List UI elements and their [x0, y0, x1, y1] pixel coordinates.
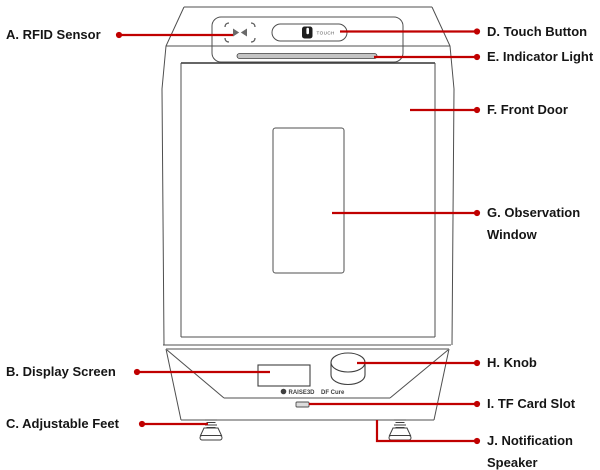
- top-panel: TOUCH: [212, 17, 403, 62]
- label-observation-window: G. Observation Window: [487, 202, 599, 246]
- brand-model-text: DF Cure: [321, 390, 345, 396]
- label-notification-speaker: J. Notification Speaker: [487, 430, 599, 470]
- brand-logo: RAISE3D DF Cure: [281, 389, 345, 396]
- label-rfid-sensor: A. RFID Sensor: [6, 27, 101, 43]
- tf-card-slot: [296, 402, 309, 407]
- display-screen: [258, 365, 310, 386]
- leader-lines: [116, 28, 480, 444]
- label-touch-button: D. Touch Button: [487, 24, 587, 40]
- front-door: [182, 64, 434, 336]
- touch-button: TOUCH: [272, 24, 347, 41]
- touch-finger-icon: [302, 27, 313, 39]
- device-diagram: TOUCH RAISE3D: [0, 0, 600, 470]
- knob: [331, 353, 365, 385]
- adjustable-foot-right: [389, 420, 411, 440]
- label-adjustable-feet: C. Adjustable Feet: [6, 416, 119, 432]
- base-pedestal: RAISE3D DF Cure: [166, 349, 449, 420]
- label-knob: H. Knob: [487, 355, 537, 371]
- label-front-door: F. Front Door: [487, 102, 568, 118]
- label-display-screen: B. Display Screen: [6, 364, 116, 380]
- rfid-sensor-icon: [225, 23, 255, 42]
- brand-name-text: RAISE3D: [289, 390, 316, 396]
- label-tf-card-slot: I. TF Card Slot: [487, 396, 575, 412]
- observation-window: [273, 128, 344, 273]
- brand-logo-icon: [281, 389, 287, 395]
- label-indicator-light: E. Indicator Light: [487, 49, 593, 65]
- indicator-light: [237, 54, 377, 59]
- touch-button-label: TOUCH: [317, 31, 335, 36]
